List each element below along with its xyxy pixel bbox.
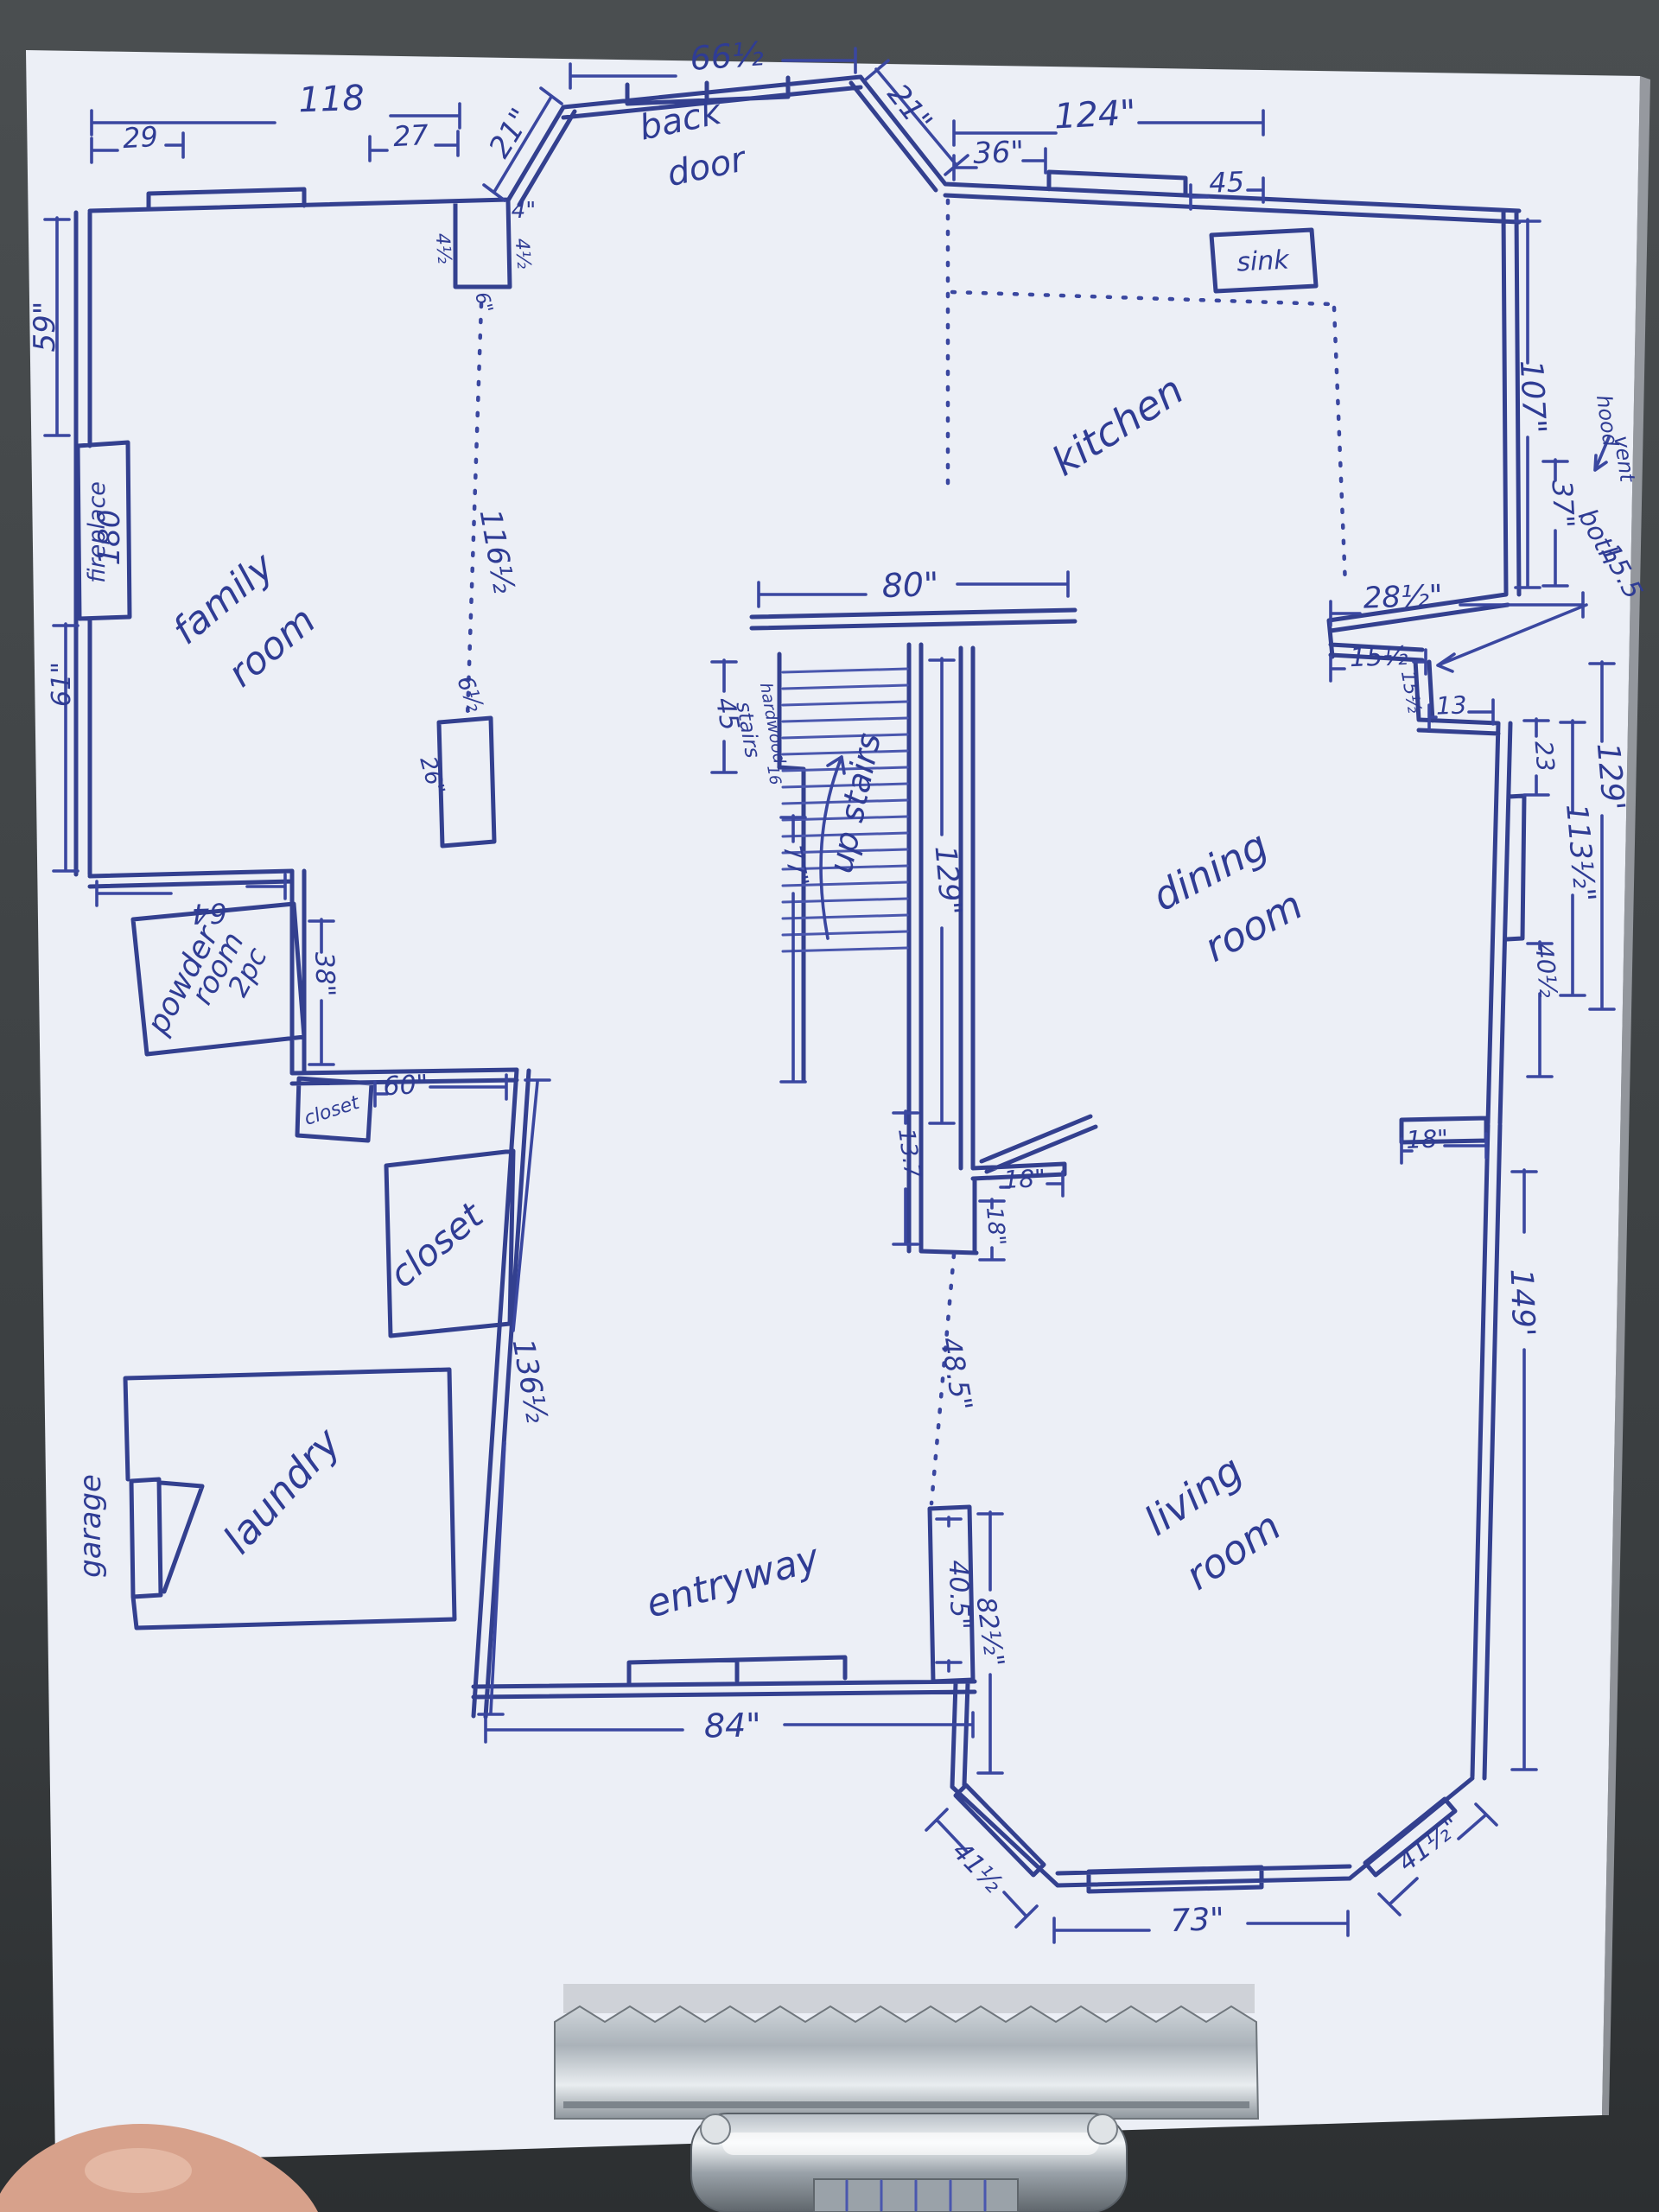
label-dim-45-kitchen: 45: [1209, 165, 1245, 199]
label-dim-40half: 40½: [1529, 942, 1562, 998]
label-dim-118: 118: [298, 79, 365, 121]
label-dim-129-stairs: 129": [928, 844, 969, 917]
label-dim-18-v: 18": [981, 1206, 1010, 1247]
paper-sheet: [26, 50, 1640, 2164]
label-dim-124: 124": [1053, 93, 1137, 137]
finger-highlight: [85, 2148, 192, 2193]
clip-bow-highlight: [722, 2133, 1099, 2155]
label-dim-129ft: 129': [1590, 741, 1631, 812]
label-dim-149: 149': [1503, 1268, 1541, 1338]
label-dim-80: 80": [881, 565, 939, 605]
label-dim-36: 36": [972, 135, 1024, 171]
label-note-16: 16: [763, 764, 785, 786]
label-dim-27: 27: [392, 118, 429, 153]
floor-plan-svg: familyroomkitchendiningroomlivingrooment…: [0, 0, 1659, 2212]
label-dim-37: 37": [1546, 480, 1581, 529]
label-dim-45-stairs: 45: [709, 696, 745, 734]
label-dim-73: 73": [1170, 1902, 1225, 1939]
label-dim-38: 38": [308, 951, 340, 997]
label-dim-4half-r: 4½: [510, 238, 534, 270]
label-dim-180: 180: [92, 510, 127, 566]
label-dim-84: 84": [703, 1706, 761, 1745]
label-dim-13: 13: [1435, 690, 1467, 720]
label-dim-15half-h: 15½: [1349, 641, 1408, 673]
label-dim-28half: 28½": [1363, 578, 1443, 615]
clip-shadow: [563, 1984, 1255, 2013]
label-dim-61: 61": [47, 662, 77, 707]
label-dim-4in: 4": [512, 198, 537, 224]
label-dim-18-right: 18": [1406, 1124, 1449, 1154]
clip-hinge-right: [1088, 2114, 1117, 2144]
label-dim-4half-l: 4½: [430, 232, 454, 264]
clipboard-photo: familyroomkitchendiningroomlivingrooment…: [0, 0, 1659, 2212]
clip-plate-ridge: [563, 2101, 1249, 2108]
label-room-garage: garage: [73, 1474, 108, 1578]
label-obj-sink: sink: [1236, 245, 1291, 277]
label-dim-405: 40.5": [943, 1560, 976, 1630]
clip-hinge-left: [701, 2114, 730, 2144]
label-dim-23: 23: [1529, 740, 1560, 772]
label-dim-59: 59": [28, 302, 62, 353]
label-dim-18-h: 18": [1003, 1164, 1046, 1194]
label-dim-107: 107": [1513, 359, 1552, 435]
label-dim-29: 29: [122, 120, 159, 155]
label-dim-66half: 66½: [689, 35, 765, 78]
label-dim-64: 64: [191, 896, 227, 930]
label-dim-60: 60": [383, 1070, 429, 1103]
